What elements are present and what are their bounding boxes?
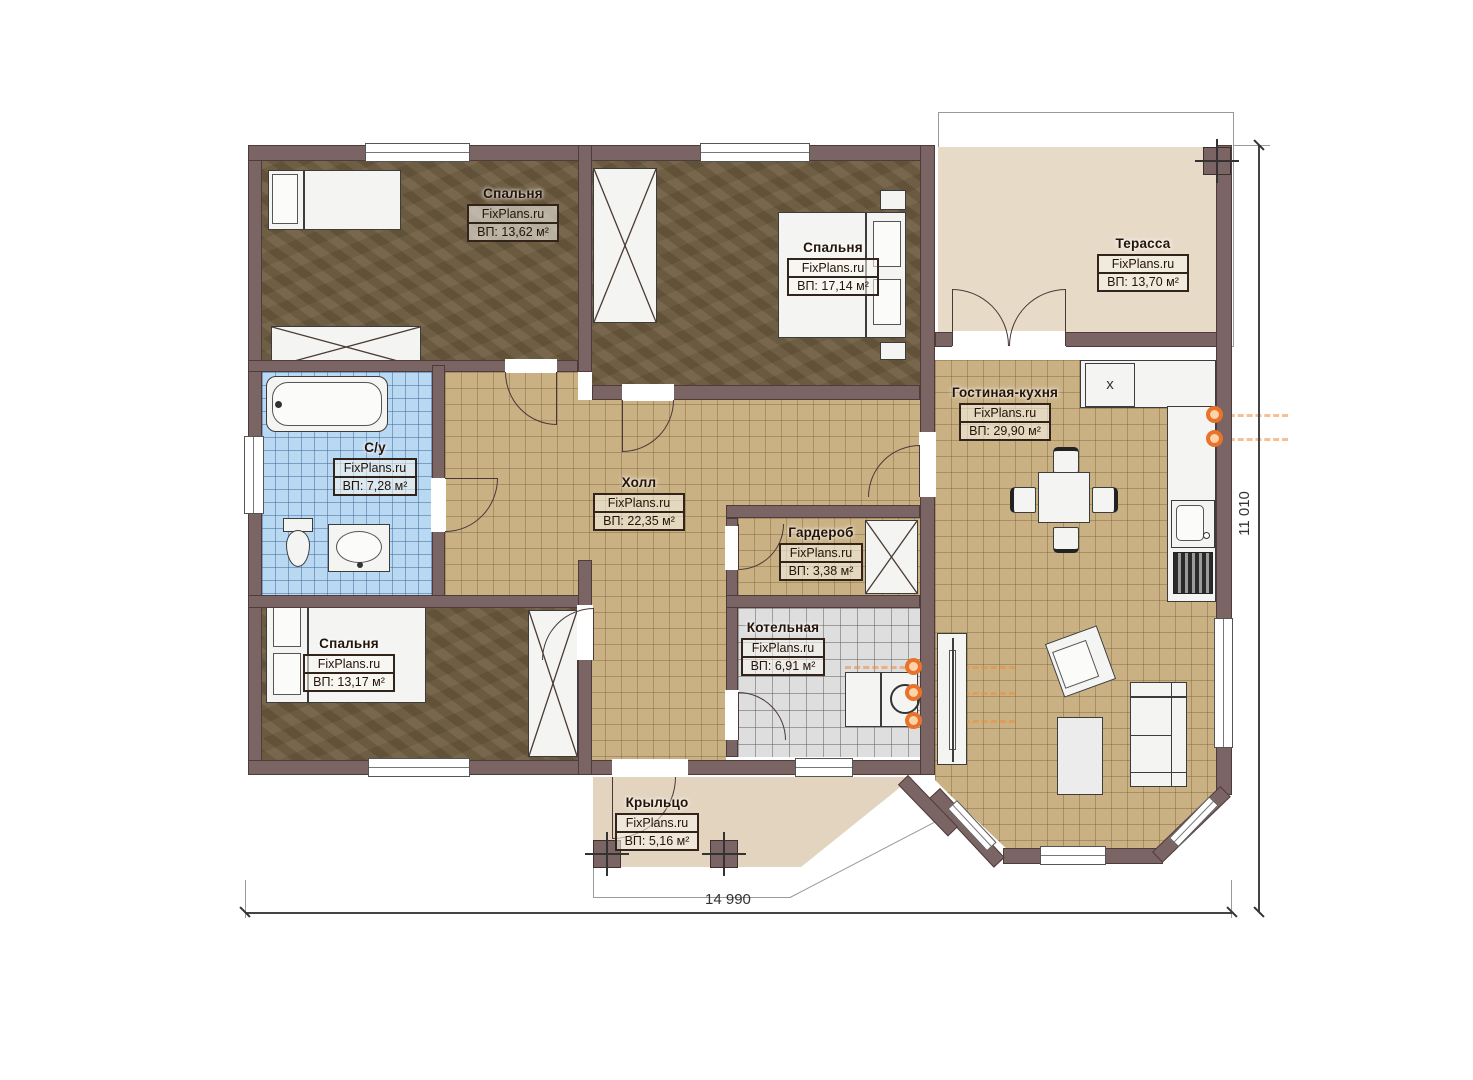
room-label-living-kitchen: Гостиная-кухня FixPlans.ruВП: 29,90 м²	[942, 385, 1068, 441]
window-living-right	[1214, 618, 1233, 748]
drain	[1203, 532, 1210, 539]
window-bedroom1	[365, 143, 470, 162]
sofa	[1130, 682, 1187, 787]
heating-pipe	[905, 684, 922, 701]
watermark: FixPlans.ru	[335, 460, 416, 478]
boiler-divider	[880, 673, 882, 726]
tv-stand	[937, 633, 967, 765]
room-label-terrace: Терасса FixPlans.ruВП: 13,70 м²	[1082, 236, 1204, 292]
room-name: Холл	[578, 475, 700, 490]
sink-basin	[336, 531, 382, 563]
heating-pipe	[905, 712, 922, 729]
single-bed	[268, 170, 401, 230]
door-gap-entrance	[612, 759, 688, 776]
room-area: ВП: 22,35 м²	[595, 513, 683, 529]
room-name: Спальня	[772, 240, 894, 255]
dining-table	[1038, 472, 1090, 523]
nightstand	[880, 190, 906, 210]
floor-plan: x	[0, 0, 1473, 1080]
dining-chair	[1053, 447, 1079, 473]
wall-wardrobe-boiler	[726, 595, 920, 608]
room-area: ВП: 17,14 м²	[789, 278, 877, 294]
watermark: FixPlans.ru	[305, 656, 393, 674]
room-area: ВП: 13,70 м²	[1099, 274, 1187, 290]
wall-bedroom3-right	[578, 560, 592, 775]
room-label-bedroom2: Спальня FixPlans.ruВП: 17,14 м²	[772, 240, 894, 296]
door-gap-bedroom2	[622, 384, 674, 401]
window-bathroom	[244, 436, 264, 514]
blanket-line	[303, 171, 305, 229]
bathtub-basin	[272, 382, 382, 426]
room-name: Спальня	[288, 636, 410, 651]
wall-bathroom-bottom	[248, 595, 592, 608]
post-axis	[723, 832, 725, 876]
room-label-wardrobe: Гардероб FixPlans.ruВП: 3,38 м²	[760, 525, 882, 581]
heating-pipe	[905, 658, 922, 675]
dining-chair	[1092, 487, 1118, 513]
watermark: FixPlans.ru	[469, 206, 557, 224]
dishwasher	[1173, 552, 1213, 594]
room-name: Крыльцо	[596, 795, 718, 810]
room-label-bedroom1: Спальня FixPlans.ruВП: 13,62 м²	[452, 186, 574, 242]
pillow	[272, 174, 298, 224]
window-bay-bottom	[1040, 846, 1106, 865]
room-name: Гардероб	[760, 525, 882, 540]
bathtub	[266, 376, 388, 432]
room-name: Терасса	[1082, 236, 1204, 251]
room-area: ВП: 13,17 м²	[305, 674, 393, 690]
watermark: FixPlans.ru	[781, 545, 862, 563]
nightstand	[880, 342, 906, 360]
wall-wardrobe-top	[726, 505, 920, 518]
tv-line	[952, 638, 954, 762]
armchair-seat	[1052, 640, 1099, 689]
watermark: FixPlans.ru	[743, 640, 824, 658]
room-name: С/у	[314, 440, 436, 455]
dining-chair	[1010, 487, 1036, 513]
room-name: Спальня	[452, 186, 574, 201]
sofa-arm-line	[1131, 696, 1186, 698]
room-label-bathroom: С/у FixPlans.ruВП: 7,28 м²	[314, 440, 436, 496]
room-label-porch: Крыльцо FixPlans.ruВП: 5,16 м²	[596, 795, 718, 851]
cabinet-mark: x	[1106, 376, 1114, 393]
door-gap-boiler	[725, 690, 739, 740]
room-area: ВП: 7,28 м²	[335, 478, 416, 494]
wall-outlet	[1206, 406, 1223, 423]
watermark: FixPlans.ru	[961, 405, 1049, 423]
dimension-height: 11 010	[1236, 491, 1253, 536]
faucet	[275, 401, 282, 408]
sofa-cushion-line	[1131, 735, 1172, 737]
room-label-boiler: Котельная FixPlans.ruВП: 6,91 м²	[722, 620, 844, 676]
room-area: ВП: 29,90 м²	[961, 423, 1049, 439]
room-name: Котельная	[722, 620, 844, 635]
door-gap-bedroom1	[505, 359, 557, 373]
room-area: ВП: 13,62 м²	[469, 224, 557, 240]
closet	[593, 168, 657, 323]
room-area: ВП: 6,91 м²	[743, 658, 824, 674]
wall-bedroom-divider	[578, 145, 592, 372]
coffee-table	[1057, 717, 1103, 795]
kitchen-sink	[1171, 500, 1215, 548]
sink-basin	[1176, 505, 1204, 541]
room-area: ВП: 5,16 м²	[617, 833, 698, 849]
watermark: FixPlans.ru	[595, 495, 683, 513]
room-name: Гостиная-кухня	[942, 385, 1068, 400]
dimension-line-right	[1258, 145, 1260, 912]
porch-outline-bottom	[593, 897, 791, 898]
wall-outlet	[1206, 430, 1223, 447]
drain	[357, 562, 363, 568]
window-bedroom2	[700, 143, 810, 162]
watermark: FixPlans.ru	[789, 260, 877, 278]
door-gap-wardrobe	[725, 526, 739, 570]
dimension-width: 14 990	[705, 891, 751, 908]
sink-vanity	[328, 524, 390, 572]
room-area: ВП: 3,38 м²	[781, 563, 862, 579]
watermark: FixPlans.ru	[617, 815, 698, 833]
dining-chair	[1053, 527, 1079, 553]
extension-line	[1234, 145, 1270, 146]
room-label-bedroom3: Спальня FixPlans.ruВП: 13,17 м²	[288, 636, 410, 692]
door-gap-kitchen	[919, 432, 936, 497]
room-label-hall: Холл FixPlans.ruВП: 22,35 м²	[578, 475, 700, 531]
sofa-arm-line	[1131, 772, 1186, 774]
watermark: FixPlans.ru	[1099, 256, 1187, 274]
dimension-line-bottom	[245, 912, 1232, 914]
column-axis	[1216, 139, 1218, 183]
kitchen-cabinet-x: x	[1085, 363, 1135, 407]
window-bedroom3	[368, 758, 470, 777]
window-boiler-side	[795, 758, 853, 777]
